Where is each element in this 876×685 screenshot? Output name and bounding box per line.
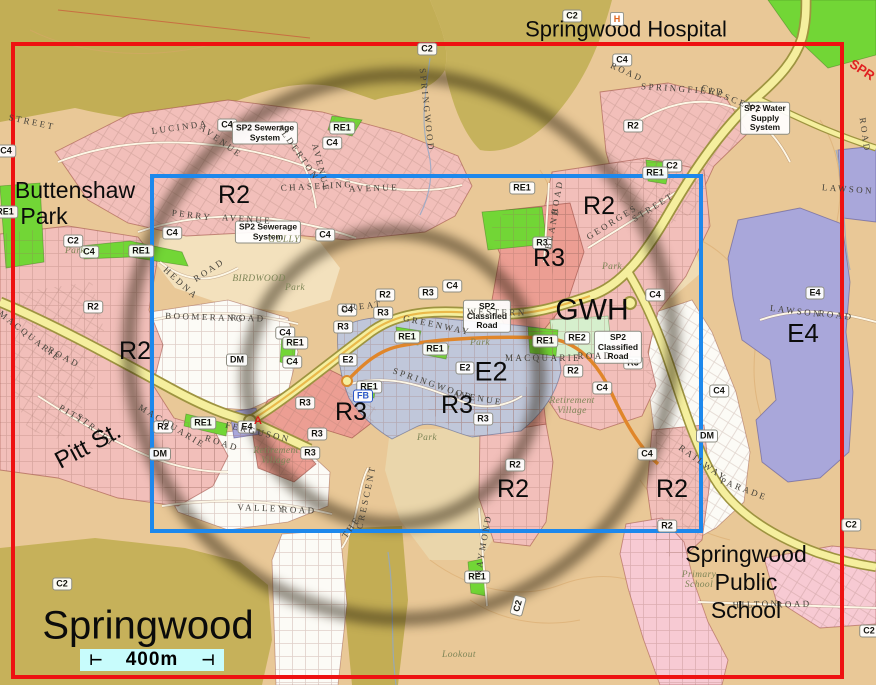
study-area-blue-frame — [150, 174, 703, 533]
scale-tick-left: ⊢ — [89, 651, 103, 669]
scale-tick-right: ⊣ — [201, 651, 215, 669]
zoning-map-canvas: R2R2R2R2R2R2R2R3R3R3R3R3R3R3R3R3C4C4C4C4… — [0, 0, 876, 685]
scale-label: 400m — [126, 649, 179, 671]
scale-bar: ⊢ 400m ⊣ — [80, 649, 224, 671]
